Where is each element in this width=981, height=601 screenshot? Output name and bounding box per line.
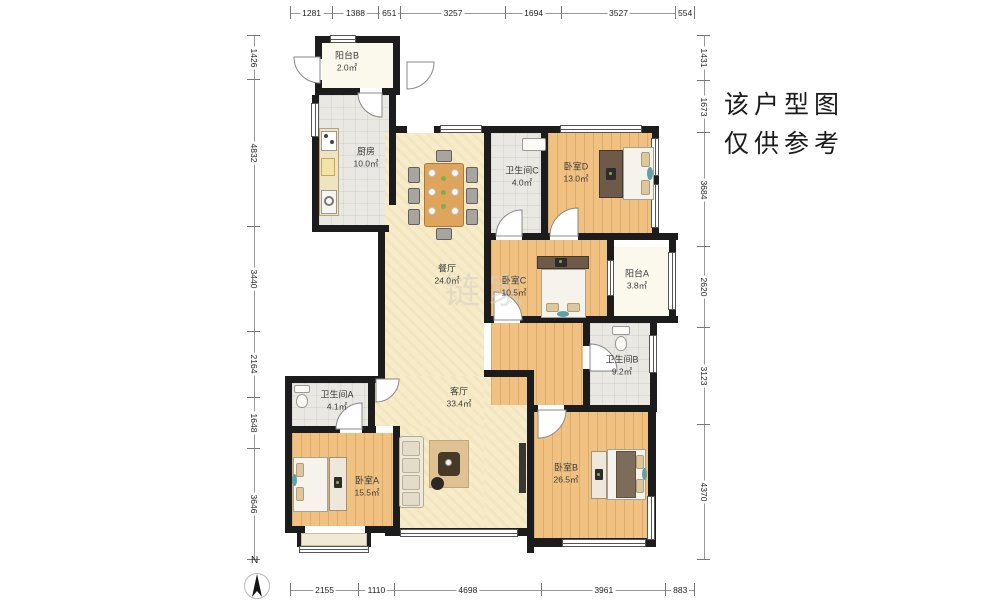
pillow [636, 479, 644, 493]
dimension-segment: 1281 [290, 6, 333, 19]
chair [466, 188, 478, 204]
pillow [641, 180, 650, 195]
dimension-value: 3123 [699, 365, 709, 388]
dimension-segment: 1431 [697, 35, 710, 81]
label-bath-c: 卫生间C4.0㎡ [505, 166, 539, 189]
dimension-segment: 651 [379, 6, 401, 19]
pillow [641, 152, 650, 167]
bedroom-d-door [550, 208, 578, 236]
decor-icon [441, 176, 446, 181]
compass-icon [243, 572, 271, 600]
dimension-segment: 2155 [290, 583, 359, 596]
dimension-value: 1648 [249, 412, 259, 435]
label-kitchen: 厨房10.0㎡ [353, 147, 378, 170]
dimension-value: 883 [671, 585, 689, 595]
dimension-segment: 4698 [395, 583, 542, 596]
dimension-value: 1673 [699, 95, 709, 118]
dimension-segment: 883 [666, 583, 695, 596]
tv-light-icon [597, 473, 600, 476]
plate-icon [428, 188, 436, 196]
plate-icon [451, 169, 459, 177]
dimension-ruler-right: 143116733684262031234370 [697, 35, 710, 560]
burner-icon [324, 134, 328, 138]
plate-icon [428, 207, 436, 215]
dimension-segment: 3646 [247, 449, 260, 560]
label-living: 客厅33.4㎡ [446, 387, 471, 410]
label-dining: 餐厅24.0㎡ [434, 264, 459, 287]
dimension-value: 3257 [442, 8, 465, 18]
kitchen-door [358, 93, 382, 117]
bedroom-a-door [376, 379, 399, 402]
balcony-b-door [294, 57, 320, 83]
dimension-value: 554 [676, 8, 694, 18]
dimension-segment: 3684 [697, 133, 710, 247]
dimension-value: 4370 [699, 481, 709, 504]
toilet-bowl [296, 394, 308, 408]
pillow [567, 303, 580, 312]
dimension-ruler-top: 12811388651325716943527554 [290, 6, 695, 19]
dimension-value: 3961 [592, 585, 615, 595]
sink-basin-icon [324, 196, 334, 206]
bed-accent [647, 167, 653, 180]
pillow [546, 303, 559, 312]
pillow [296, 463, 304, 477]
sofa-cushion [402, 458, 420, 473]
dimension-ruler-bottom: 2155111046983961883 [290, 583, 695, 596]
pillow [636, 455, 644, 469]
reference-note-line2: 仅供参考 [724, 125, 844, 164]
dimension-segment: 2164 [247, 332, 260, 398]
plate-icon [451, 207, 459, 215]
plate-icon [428, 169, 436, 177]
dimension-segment: 1110 [359, 583, 395, 596]
tv-light-icon [609, 172, 612, 175]
tv-cabinet [519, 443, 526, 493]
dimension-value: 3684 [699, 178, 709, 201]
reference-note: 该户型图 仅供参考 [724, 86, 844, 164]
entry-door [407, 62, 434, 89]
bay-window-bench [301, 533, 367, 546]
dimension-ruler-left: 142648323440216416483646 [247, 35, 260, 560]
decor-icon [441, 204, 446, 209]
chair [466, 167, 478, 183]
label-bedroom-a: 卧室A15.5㎡ [354, 476, 379, 499]
cup-icon [445, 459, 452, 466]
dimension-value: 3440 [249, 267, 259, 290]
label-bath-a: 卫生间A4.1㎡ [320, 390, 353, 413]
toilet-tank [612, 326, 630, 335]
chair [408, 209, 420, 225]
sofa-cushion [402, 475, 420, 490]
label-balcony-a: 阳台A3.8㎡ [625, 269, 649, 292]
tv-light-icon [336, 481, 339, 484]
label-bedroom-b: 卧室B26.5㎡ [553, 463, 578, 486]
tv-light-icon [559, 260, 562, 263]
chair [466, 209, 478, 225]
dimension-segment: 3961 [542, 583, 666, 596]
plate-icon [451, 188, 459, 196]
dimension-value: 1431 [699, 46, 709, 69]
label-bath-b: 卫生间B9.2㎡ [605, 355, 638, 378]
dimension-segment: 2620 [697, 247, 710, 328]
sofa-cushion [402, 492, 420, 506]
chair [408, 188, 420, 204]
chair [408, 167, 420, 183]
dimension-value: 1426 [249, 46, 259, 69]
pillow [296, 487, 304, 501]
chair [436, 228, 452, 240]
burner-icon [330, 140, 334, 144]
dimension-value: 1388 [344, 8, 367, 18]
dimension-value: 1281 [300, 8, 323, 18]
blanket [616, 451, 636, 498]
dimension-value: 4832 [249, 142, 259, 165]
floor-plan-page: 链家 阳台B2.0㎡ 厨房10.0㎡ 餐厅24.0㎡ 卫生间C4.0㎡ 卧室D1… [0, 0, 981, 601]
dimension-value: 2164 [249, 353, 259, 376]
toilet-tank [294, 385, 310, 393]
dimension-value: 4698 [456, 585, 479, 595]
beanbag-chair [431, 477, 444, 490]
kitchen-cabinet [321, 158, 335, 176]
dimension-value: 2620 [699, 276, 709, 299]
dimension-value: 2155 [313, 585, 336, 595]
bed-accent [292, 474, 297, 486]
dimension-value: 1694 [522, 8, 545, 18]
dimension-segment: 554 [676, 6, 695, 19]
dimension-value: 1110 [366, 585, 388, 595]
dimension-value: 3646 [249, 492, 259, 515]
dimension-value: 651 [380, 8, 398, 18]
decor-icon [441, 190, 446, 195]
bed-accent [642, 468, 647, 480]
dimension-segment: 3527 [562, 6, 676, 19]
bedroom-b-door [538, 410, 566, 438]
dimension-segment: 1673 [697, 81, 710, 133]
dimension-value: 3527 [607, 8, 630, 18]
dimension-segment: 1694 [506, 6, 561, 19]
bathroom-sink [522, 138, 546, 151]
reference-note-line1: 该户型图 [724, 86, 844, 125]
dimension-segment: 3123 [697, 328, 710, 425]
dimension-segment: 4370 [697, 425, 710, 560]
bath-c-door [496, 210, 522, 236]
toilet-bowl [615, 336, 627, 351]
dimension-segment: 4832 [247, 80, 260, 227]
dimension-segment: 1648 [247, 398, 260, 449]
dimension-segment: 1426 [247, 35, 260, 80]
dimension-segment: 1388 [333, 6, 379, 19]
chair [436, 150, 452, 162]
bed-accent [557, 311, 569, 317]
sofa-cushion [402, 441, 420, 456]
label-bedroom-d: 卧室D13.0㎡ [563, 162, 588, 185]
label-bedroom-c: 卧室C10.5㎡ [501, 276, 526, 299]
label-balcony-b: 阳台B2.0㎡ [335, 51, 359, 74]
dimension-segment: 3440 [247, 227, 260, 332]
north-label: N [251, 555, 258, 566]
dimension-segment: 3257 [401, 6, 507, 19]
